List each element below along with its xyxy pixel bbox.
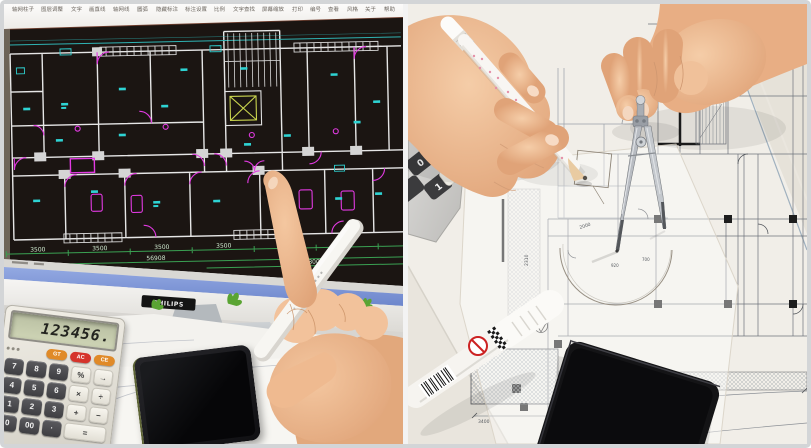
calculator-keypad: 7 8 9 % → 4 5 6 × ÷ 1 2 3 + − 0 00 · = [4, 357, 114, 443]
monitor-left-edge [4, 29, 10, 261]
toolbar-item: 文字查找 [233, 8, 255, 14]
marker-logo [469, 337, 487, 355]
plan-elevator [225, 91, 262, 126]
toolbar-item: 文字 [71, 8, 82, 14]
dim-segment: 3500 [92, 245, 108, 252]
dim-label: 3400 [478, 419, 490, 425]
smartphone [132, 344, 262, 444]
toolbar-item: 屏幕缩放 [262, 8, 284, 14]
dim-right: 7800 [304, 259, 320, 266]
calculator-key: 1 [4, 395, 20, 413]
toolbar-item: 图层调整 [41, 8, 63, 14]
calculator-key: − [88, 406, 109, 424]
calculator-key: 5 [23, 379, 44, 397]
dim-label: 700 [642, 257, 650, 262]
toolbar-item: 隐藏标注 [155, 8, 177, 14]
toolbar-item: 关于 [365, 8, 376, 14]
toolbar-item: 圆弧 [137, 8, 148, 14]
toolbar-item: 标注设置 [185, 8, 207, 14]
toolbar-item: 比例 [214, 8, 225, 14]
calculator-key-ce: CE [93, 354, 115, 366]
calculator-key-gt: GT [46, 348, 68, 360]
dim-label: 920 [611, 263, 619, 268]
toolbar-item: 风格 [347, 8, 358, 14]
calculator-key: 00 [19, 417, 40, 435]
dim-segment: 3500 [154, 244, 170, 251]
dim-segment: 3500 [216, 242, 232, 249]
smartphone-screen [139, 350, 256, 444]
calculator-key: · [41, 419, 62, 437]
right-photo-blueprints: 9000 30700 3400 2000 920 700 2310 0 1 [408, 4, 807, 444]
calculator-key: 6 [46, 382, 67, 400]
photo-collage-frame: 3500 3500 3500 3500 3500 56908 7800 [0, 0, 811, 448]
calculator-key: 3 [43, 401, 64, 419]
calculator-key: % [70, 366, 91, 384]
dim-segment: 3500 [30, 246, 46, 253]
toolbar-item: 打印 [292, 8, 303, 14]
toolbar-item: 画直线 [89, 8, 106, 14]
calculator-key: + [66, 403, 87, 421]
toolbar-item: 编号 [310, 8, 321, 14]
calculator-key: = [63, 422, 106, 443]
calculator-key: ÷ [90, 387, 111, 405]
pencil-graphite [583, 176, 587, 180]
calculator: 123456. GT AC CE 7 8 9 % → 4 5 6 × ÷ 1 2 [4, 304, 126, 444]
calculator-key-ac: AC [70, 351, 92, 363]
toolbar-item: 帮助 [384, 8, 395, 14]
calculator-key: → [93, 368, 114, 386]
toolbar-item: 轴网线 [113, 8, 130, 14]
calculator-key: 9 [48, 363, 69, 381]
compass-middle-finger [664, 44, 668, 88]
calculator-key: 7 [4, 357, 25, 375]
compass-thumb-nail [623, 106, 634, 120]
calculator-key: 4 [4, 376, 22, 394]
calculator-key: 0 [4, 414, 18, 432]
compass-knob [636, 96, 645, 105]
compass-hinge [633, 116, 648, 127]
left-photo-cad-monitor: 3500 3500 3500 3500 3500 56908 7800 [4, 4, 403, 444]
calculator-key: 8 [26, 360, 47, 378]
toolbar-item: 查看 [328, 8, 339, 14]
dim-total: 56908 [146, 255, 165, 262]
calculator-display-value: 123456. [40, 319, 112, 345]
right-photo-scene: 9000 30700 3400 2000 920 700 2310 0 1 [408, 4, 807, 444]
calculator-key: × [68, 384, 89, 402]
calculator-key: 2 [21, 398, 42, 416]
calculator-speaker-dots [7, 347, 20, 352]
dim-segment: 3500 [278, 241, 294, 248]
toolbar-item: 轴网柱子 [12, 8, 34, 14]
dim-label: 2310 [524, 254, 530, 266]
compass-knuckle [674, 61, 708, 95]
